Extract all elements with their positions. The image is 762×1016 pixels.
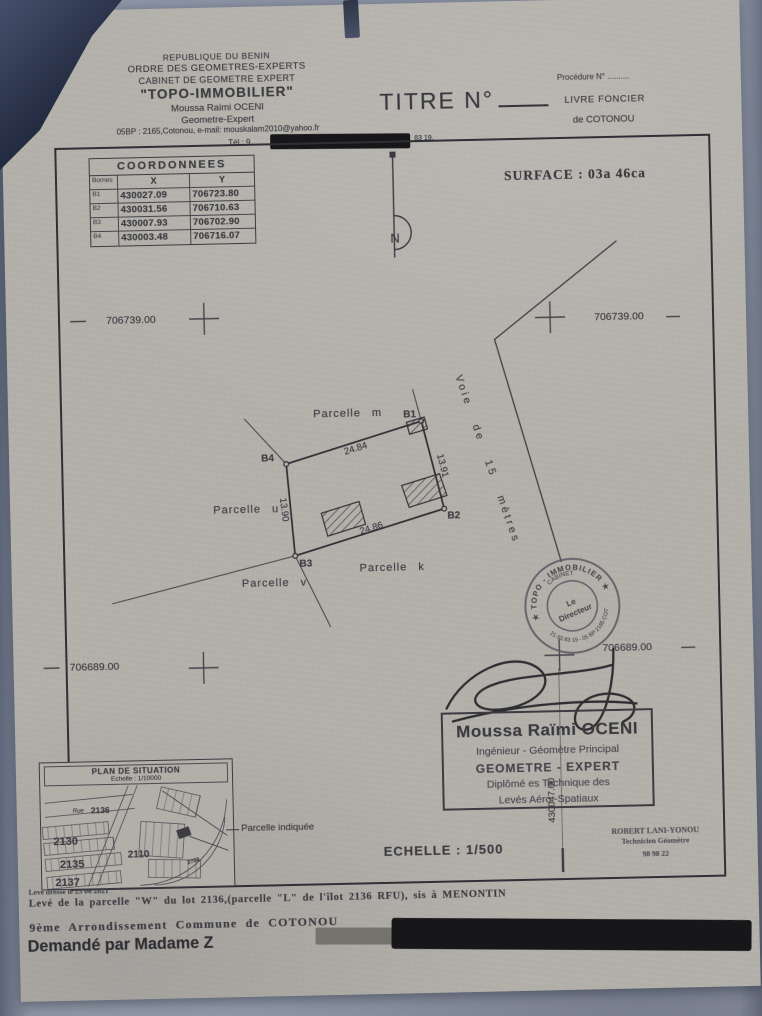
col-header-bornes: Bornes [90,176,118,191]
coordinates-table: COORDONNEES Bornes X Y B1 430027.09 7067… [88,155,256,248]
pointer-arrow-line [189,835,228,851]
livre-place: de COTONOU [573,113,635,125]
table-cell: B4 [91,232,119,247]
livre-foncier: LIVRE FONCIER [564,93,645,106]
procedure-number: Procédure N° .......... [557,71,630,82]
cabinet-header: REPUBLIQUE DU BENIN ORDRE DES GEOMETRES-… [36,48,398,140]
footer-line3: Demandé par Madame Z [27,933,213,957]
technician-phone: 98 98 22 [612,848,700,860]
table-cell: B2 [91,204,119,219]
surface-label: SURFACE : 03a 46ca [504,165,646,184]
street-label: Rue [73,809,85,815]
title-number: TITRE N° [379,85,548,116]
pointer-label: Parcelle indiquée [241,822,314,835]
table-cell: 430003.48 [119,230,191,246]
surveyor-name: Moussa Raïmi OCENI [443,715,652,745]
paper-clip-mark [343,0,360,38]
table-cell: B1 [90,190,118,205]
footer-date: Levé dressé le 23 06 2021 [28,886,108,897]
surveyor-stamp-box: Moussa Raïmi OCENI Ingénieur - Géomètre … [441,708,655,811]
situation-title-box: PLAN DE SITUATION Echelle : 1/10000 [44,762,228,786]
lot-2110: 2110 [128,849,150,860]
technician-block: ROBERT LANI-YONOU Technicien Géomètre 98… [611,825,700,860]
scale-label: ECHELLE : 1/500 [384,841,504,859]
situation-map: PLAN DE SITUATION Echelle : 1/10000 [39,758,236,890]
table-cell: 706723.80 [190,187,254,202]
situation-sketch: Rue 2136 2130 2135 2137 2110 2733 [40,783,230,887]
footer-redaction-gray [316,928,400,945]
title-blank-line [498,104,548,107]
table-cell: B3 [91,218,119,233]
title-label: TITRE N° [379,86,494,114]
scanned-photo: { "cabinet": { "line1": "REPUBLIQUE DU B… [0,0,762,1016]
lot-2136: 2136 [91,805,110,815]
technician-role: Technicien Géomètre [611,836,699,848]
footer-redaction-black [391,918,751,951]
col-header-y: Y [190,173,254,188]
lot-2135: 2135 [60,859,85,872]
table-cell: 706702.90 [191,215,255,230]
lot-2130: 2130 [53,836,78,849]
table-cell: 706716.07 [191,229,255,244]
table-cell: 706710.63 [190,201,254,216]
survey-plan-paper: REPUBLIQUE DU BENIN ORDRE DES GEOMETRES-… [0,0,761,1002]
